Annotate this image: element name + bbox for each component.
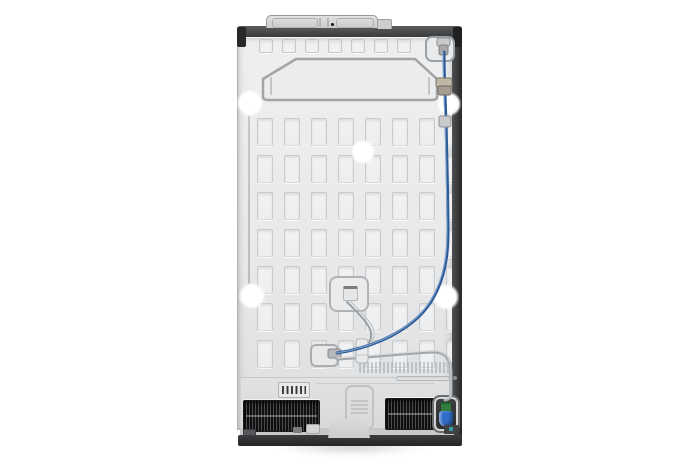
embossed-slot bbox=[257, 229, 273, 257]
mounting-hole bbox=[351, 140, 375, 164]
embossed-slot bbox=[311, 118, 327, 146]
mounting-hole bbox=[433, 284, 459, 310]
compartment-seam-line bbox=[316, 383, 434, 384]
base-bracket bbox=[444, 425, 459, 434]
embossed-slot bbox=[392, 229, 408, 257]
embossed-slot bbox=[419, 118, 435, 146]
left-panel-groove bbox=[248, 116, 250, 284]
label-dot bbox=[449, 427, 453, 431]
embossed-slot bbox=[392, 303, 408, 331]
base-bracket bbox=[306, 424, 320, 434]
water-inlet-recess bbox=[425, 36, 455, 62]
hinge-cover-slot-right bbox=[336, 18, 374, 28]
embossed-slot bbox=[338, 340, 354, 368]
top-vent-square bbox=[351, 39, 365, 53]
top-vent-square bbox=[305, 39, 319, 53]
mounting-hole bbox=[239, 283, 265, 309]
embossed-slot bbox=[311, 266, 327, 294]
hinge-cover-ridge bbox=[327, 18, 329, 27]
embossed-slot bbox=[338, 229, 354, 257]
top-vent-square bbox=[282, 39, 296, 53]
embossed-slot bbox=[284, 266, 300, 294]
barcode-bars bbox=[282, 386, 306, 394]
base-bracket bbox=[243, 429, 256, 436]
embossed-slot bbox=[257, 118, 273, 146]
embossed-slot bbox=[284, 303, 300, 331]
top-vent-square bbox=[397, 39, 411, 53]
embossed-slot bbox=[311, 192, 327, 220]
top-vent-square bbox=[259, 39, 273, 53]
embossed-slot bbox=[284, 155, 300, 183]
embossed-slot bbox=[392, 192, 408, 220]
base-screw bbox=[293, 427, 302, 433]
embossed-slot bbox=[284, 340, 300, 368]
embossed-slot bbox=[284, 192, 300, 220]
mounting-hole bbox=[437, 92, 461, 116]
embossed-slot bbox=[257, 155, 273, 183]
embossed-slot bbox=[365, 229, 381, 257]
top-left-corner-bracket bbox=[237, 27, 246, 47]
embossed-slot bbox=[365, 192, 381, 220]
embossed-slot bbox=[311, 303, 327, 331]
embossed-slot bbox=[311, 155, 327, 183]
top-vent-square bbox=[374, 39, 388, 53]
product-photo bbox=[0, 0, 700, 465]
panel-screw bbox=[453, 376, 457, 380]
embossed-slot bbox=[257, 340, 273, 368]
embossed-slot bbox=[257, 192, 273, 220]
embossed-slot bbox=[284, 118, 300, 146]
embossed-slot bbox=[392, 155, 408, 183]
screw-dot-icon bbox=[331, 23, 334, 26]
embossed-slot bbox=[311, 340, 327, 368]
stamped-serial-emboss bbox=[359, 362, 453, 373]
embossed-slot bbox=[392, 266, 408, 294]
embossed-slot bbox=[419, 192, 435, 220]
embossed-slot bbox=[284, 229, 300, 257]
top-vent-square bbox=[328, 39, 342, 53]
embossed-slot bbox=[419, 155, 435, 183]
embossed-slot bbox=[392, 118, 408, 146]
embossed-slot bbox=[419, 229, 435, 257]
center-square-cutout bbox=[343, 286, 358, 301]
refrigerator-back-panel bbox=[237, 36, 454, 430]
hinge-cover-ridge bbox=[319, 18, 321, 27]
barcode-vent-plate bbox=[278, 382, 310, 398]
embossed-slot bbox=[338, 192, 354, 220]
embossed-slot bbox=[311, 229, 327, 257]
hinge-cover bbox=[266, 15, 378, 28]
mounting-hole bbox=[237, 90, 263, 116]
hinge-cover-step bbox=[377, 19, 392, 29]
hinge-cover-slot-left bbox=[272, 18, 318, 28]
center-access-recess bbox=[329, 276, 369, 312]
compartment-vent-slot bbox=[396, 376, 450, 381]
bottom-center-tab bbox=[328, 419, 370, 438]
